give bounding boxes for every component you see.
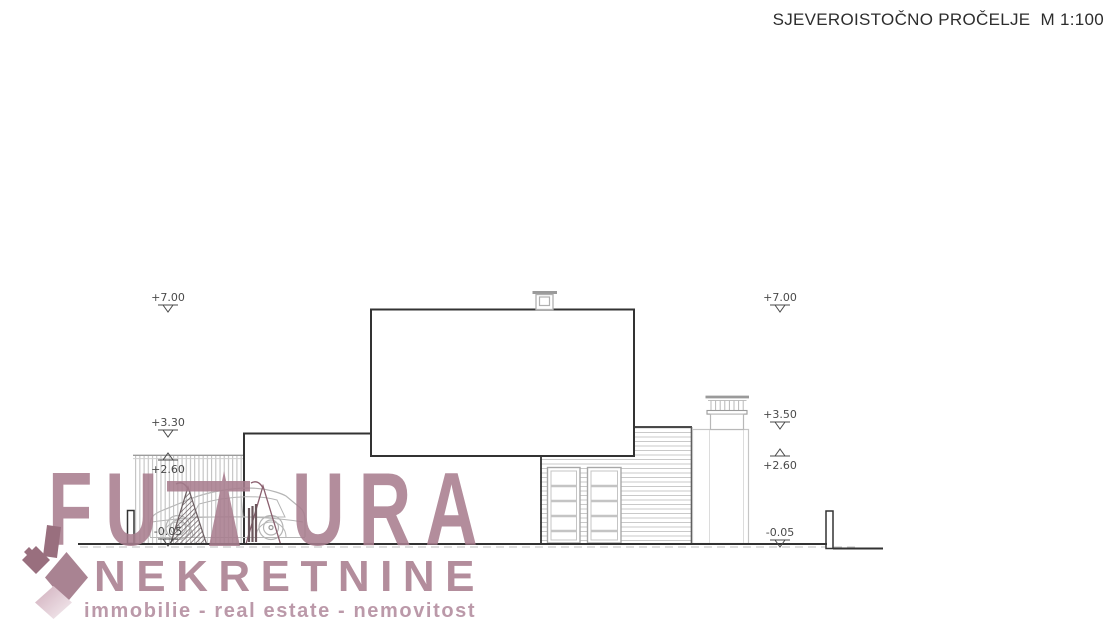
level-marker-up-icon bbox=[770, 448, 790, 459]
level-marker-down-icon bbox=[158, 304, 178, 315]
level-marker-up-icon bbox=[158, 452, 178, 463]
level-annotation: -0.05 bbox=[760, 527, 800, 550]
level-label: -0.05 bbox=[154, 526, 182, 537]
roof-chimney bbox=[706, 397, 750, 430]
annex-door bbox=[588, 468, 622, 544]
level-annotation: +3.50 bbox=[760, 409, 800, 432]
annex-door bbox=[548, 468, 581, 544]
elevation-sheet: SJEVEROISTOČNO PROČELJE M 1:100 bbox=[0, 0, 1117, 641]
level-marker-down-icon bbox=[770, 421, 790, 432]
level-label: -0.05 bbox=[766, 527, 794, 538]
sheet-title: SJEVEROISTOČNO PROČELJE M 1:100 bbox=[773, 10, 1104, 30]
level-annotation: +2.60 bbox=[148, 452, 188, 475]
rooftop-vent bbox=[533, 293, 558, 310]
level-label: +7.00 bbox=[151, 292, 185, 303]
level-annotation: +7.00 bbox=[148, 292, 188, 315]
level-label: +2.60 bbox=[151, 464, 185, 475]
boundary-pillar-right bbox=[826, 511, 833, 549]
level-annotation: -0.05 bbox=[148, 526, 188, 549]
level-marker-down-icon bbox=[158, 429, 178, 440]
level-label: +3.30 bbox=[151, 417, 185, 428]
level-label: +2.60 bbox=[763, 460, 797, 471]
level-annotation: +3.30 bbox=[148, 417, 188, 440]
boundary-post-left bbox=[128, 511, 135, 544]
main-building-volume bbox=[371, 310, 634, 457]
level-label: +7.00 bbox=[763, 292, 797, 303]
level-marker-down-icon bbox=[158, 538, 178, 549]
level-annotation: +2.60 bbox=[760, 448, 800, 471]
level-annotation: +7.00 bbox=[760, 292, 800, 315]
level-marker-down-icon bbox=[770, 539, 790, 550]
level-marker-down-icon bbox=[770, 304, 790, 315]
level-label: +3.50 bbox=[763, 409, 797, 420]
parapet-wall bbox=[693, 430, 749, 544]
